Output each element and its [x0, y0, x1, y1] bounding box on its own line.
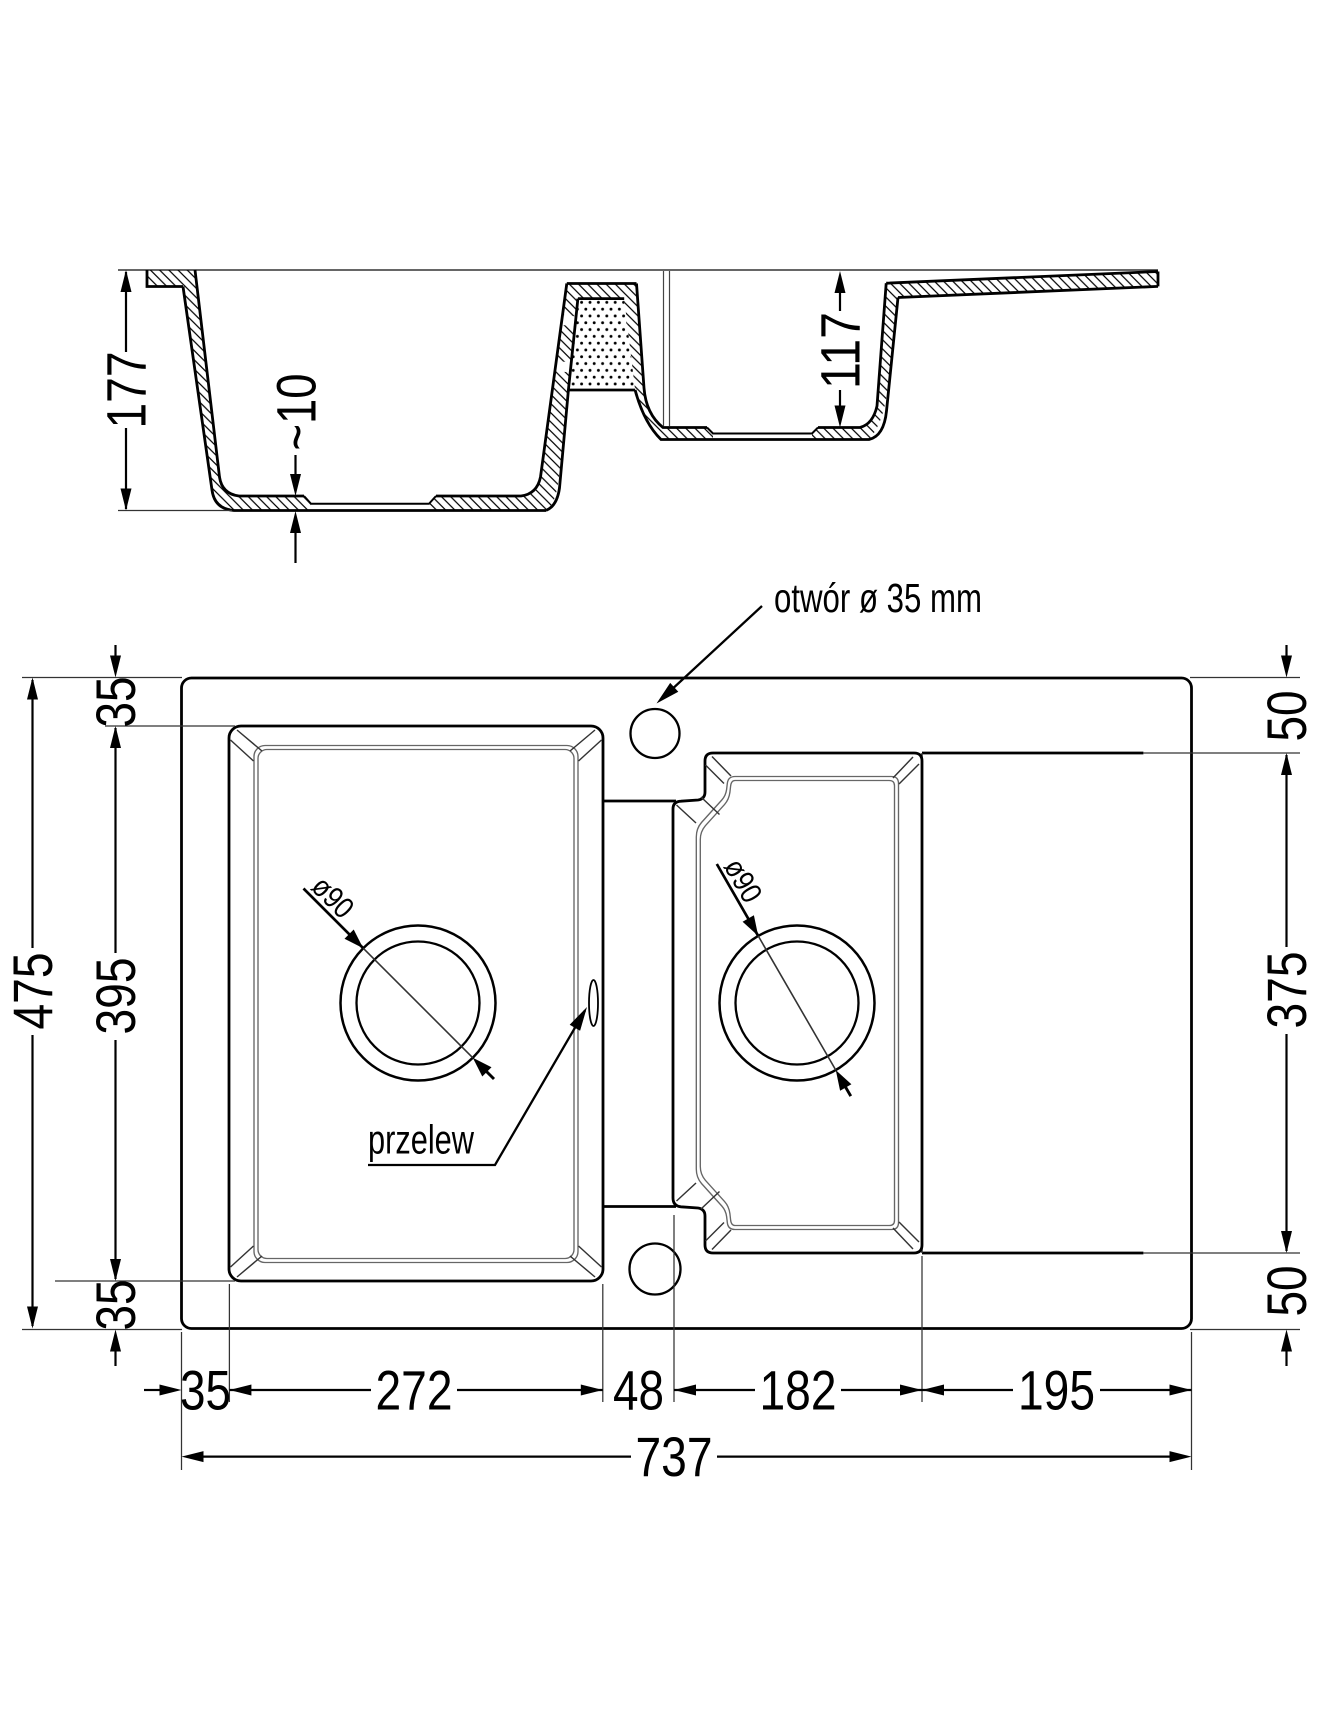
svg-text:48: 48: [613, 1359, 664, 1422]
svg-text:~10: ~10: [265, 374, 328, 451]
svg-text:50: 50: [1255, 1266, 1318, 1317]
svg-text:272: 272: [376, 1359, 453, 1422]
svg-text:35: 35: [84, 1280, 147, 1331]
svg-text:195: 195: [1018, 1359, 1095, 1422]
svg-text:przelew: przelew: [368, 1117, 474, 1163]
svg-text:otwór ø 35 mm: otwór ø 35 mm: [774, 575, 982, 621]
svg-text:35: 35: [84, 677, 147, 728]
svg-text:177: 177: [95, 352, 158, 429]
svg-text:182: 182: [760, 1359, 837, 1422]
svg-text:35: 35: [180, 1359, 231, 1422]
svg-text:475: 475: [1, 953, 64, 1030]
svg-text:117: 117: [809, 312, 872, 389]
svg-text:375: 375: [1255, 952, 1318, 1029]
svg-text:50: 50: [1255, 691, 1318, 742]
svg-text:395: 395: [84, 958, 147, 1035]
svg-text:737: 737: [636, 1425, 713, 1488]
